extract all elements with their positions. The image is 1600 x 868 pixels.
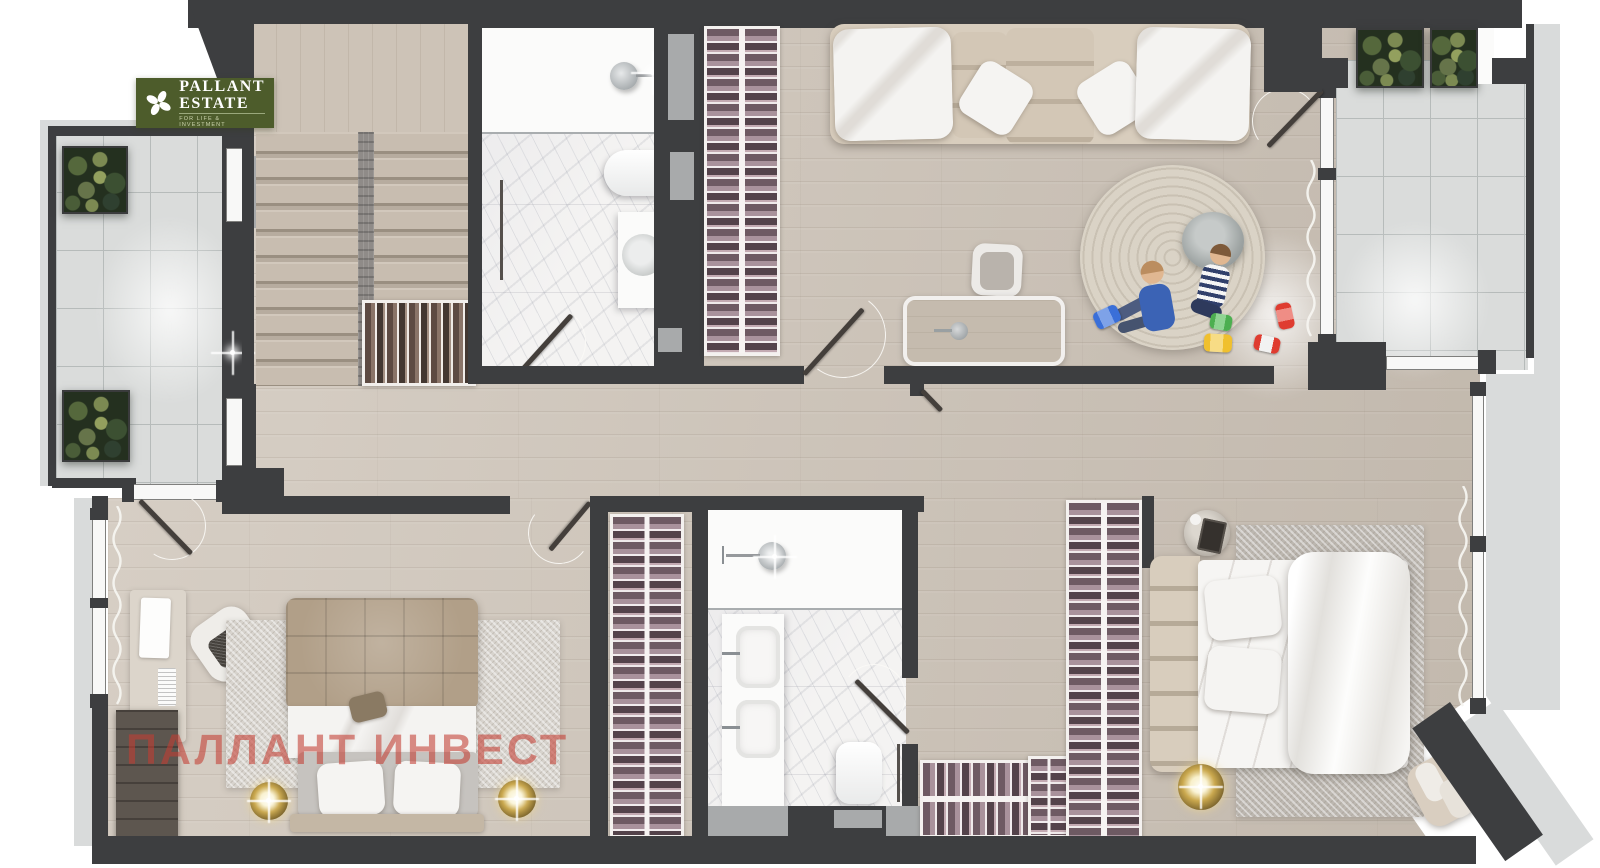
bathroom1-shower-glass <box>482 132 656 134</box>
shaft-1 <box>668 34 694 120</box>
window-balcony-right-bottom <box>1386 356 1482 370</box>
bathroom2-shower <box>708 510 906 610</box>
bathroom2-sink-1 <box>736 626 780 688</box>
apron-right-top <box>1534 24 1560 374</box>
balcony-right-block-bl <box>1308 342 1386 390</box>
shoe-closet-understairs <box>362 300 476 386</box>
curtain-bed2 <box>1456 486 1470 708</box>
vent-bottom-2 <box>834 810 882 828</box>
wardrobe-closet1 <box>610 514 684 838</box>
bed2-headboard <box>1150 556 1200 772</box>
bed2-pillow-bottom <box>1203 645 1282 715</box>
bathroom2-shower-glass <box>708 608 906 610</box>
hall-wall-top-3 <box>938 366 1274 384</box>
stairs-wall-left <box>242 20 254 386</box>
bed1-lamp-glint-left <box>266 798 271 803</box>
curtain-bed1 <box>110 506 124 706</box>
bed1-window-left <box>92 512 106 704</box>
apron-right-mid <box>1486 374 1560 710</box>
vent-bottom-3 <box>886 806 922 836</box>
bathroom2-sink-2 <box>736 700 780 758</box>
bathroom2-towel-rail <box>897 744 900 802</box>
balcony-right-block-tl <box>1302 58 1348 88</box>
floor-plan: PALLANT ESTATE FOR LIFE & INVESTMENT ПАЛ… <box>0 0 1600 868</box>
logo-pinwheel-icon <box>145 85 172 121</box>
bed2-window-block-3 <box>1470 698 1486 714</box>
desk-object-handle <box>934 329 952 332</box>
toy-car-yellow <box>1204 333 1233 352</box>
bed1-bench <box>290 814 484 832</box>
logo-text: PALLANT ESTATE FOR LIFE & INVESTMENT <box>179 78 265 128</box>
bathroom2-faucet-1 <box>722 652 740 655</box>
bed1-balcony-jamb-l <box>122 482 134 502</box>
shaft-3 <box>658 328 682 352</box>
bathroom2-toilet <box>836 742 882 804</box>
balcony-left-wall-left <box>48 126 56 486</box>
balcony-right-wall-right <box>1526 24 1534 358</box>
bed1-window-block-1 <box>90 508 108 520</box>
sofa-throw-right <box>1135 27 1252 142</box>
planter-left-top <box>62 146 128 214</box>
bathroom2-wall-right-top <box>902 496 918 678</box>
wall-bottom <box>92 836 1476 864</box>
bathroom1-wall-left <box>468 20 482 372</box>
bathroom2-faucet-2 <box>722 726 740 729</box>
stairs-flight-right <box>374 132 474 304</box>
sofa-throw-left <box>833 26 954 141</box>
bed2-window-block-2 <box>1470 536 1486 552</box>
planter-right-2 <box>1430 28 1478 88</box>
bed2-lamp-glint <box>1198 784 1203 789</box>
window-glint-left <box>230 350 235 355</box>
window-living-balcony <box>1320 86 1334 348</box>
wardrobe-hall <box>704 26 780 356</box>
wardrobe-walkin-corner <box>1028 756 1070 838</box>
bed2-pillow-top <box>1203 574 1283 641</box>
bed2-cup <box>1190 514 1201 525</box>
logo-tagline: FOR LIFE & INVESTMENT <box>179 113 265 128</box>
kid-left <box>1105 256 1190 349</box>
planter-left-bottom <box>62 390 130 462</box>
bed1-keyboard <box>158 668 176 706</box>
living-desk <box>903 296 1065 366</box>
living-chair-seat <box>980 252 1014 290</box>
shower2-valve <box>722 546 724 564</box>
balcony-right-block-tr <box>1492 58 1530 84</box>
shaft-2 <box>670 152 694 200</box>
hall-wall-top-1 <box>476 366 804 384</box>
bed1-window-block-2 <box>90 598 108 608</box>
bed2-duvet <box>1288 552 1410 774</box>
bathroom2-wall-left <box>692 496 708 842</box>
bed1-laptop <box>139 597 171 658</box>
shower1-head <box>610 62 638 90</box>
logo: PALLANT ESTATE FOR LIFE & INVESTMENT <box>136 78 274 128</box>
bathroom1-towel-rail <box>500 180 503 280</box>
bed1-wall-left-bottom <box>92 704 108 844</box>
curtain-living <box>1304 160 1318 342</box>
balcony-right-corner-br <box>1478 350 1496 374</box>
bed2-window-block-1 <box>1470 382 1486 396</box>
bed1-wall-corner <box>222 468 284 502</box>
vent-bottom-1 <box>708 806 788 836</box>
window-frame-block-b <box>1318 168 1336 180</box>
stairs-flight-left <box>256 132 358 386</box>
desk-faucet-object <box>950 322 968 340</box>
bed2-wall-stub <box>1142 496 1154 568</box>
bed1-lamp-glint-right <box>514 796 519 801</box>
stairs-landing <box>252 24 474 132</box>
hall-wall-left <box>242 384 256 476</box>
logo-line2: ESTATE <box>179 95 265 112</box>
watermark: ПАЛЛАНТ ИНВЕСТ <box>126 726 569 775</box>
logo-line1: PALLANT <box>179 78 265 95</box>
planter-right-1 <box>1356 28 1424 88</box>
bed1-balcony-jamb-r <box>216 480 230 502</box>
shower2-glint <box>772 554 777 559</box>
wardrobe-bed2 <box>1066 500 1142 840</box>
bed1-wall-right <box>590 496 608 842</box>
